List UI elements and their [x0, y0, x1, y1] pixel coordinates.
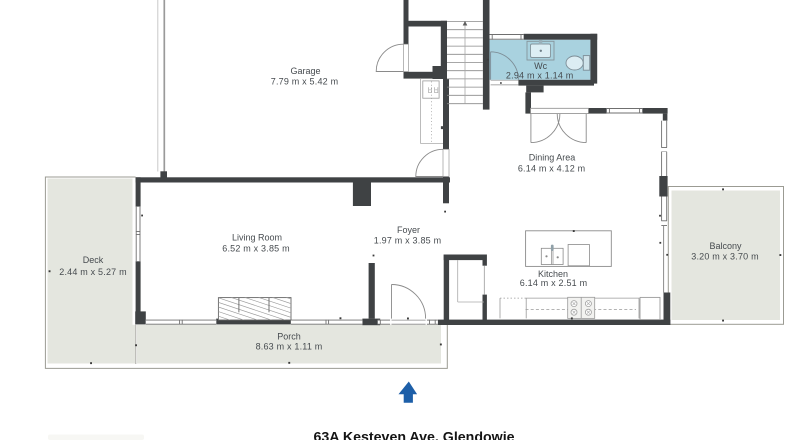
svg-text:Garage: Garage	[290, 66, 320, 76]
svg-text:7.79 m x 5.42 m: 7.79 m x 5.42 m	[271, 77, 339, 87]
svg-text:Balcony: Balcony	[709, 241, 742, 251]
svg-text:8.63 m x 1.11 m: 8.63 m x 1.11 m	[256, 342, 323, 352]
svg-text:Wc: Wc	[534, 61, 547, 71]
svg-text:2.44 m x 5.27 m: 2.44 m x 5.27 m	[59, 267, 127, 277]
svg-text:Living Room: Living Room	[232, 233, 282, 243]
svg-text:Dining Area: Dining Area	[529, 153, 576, 163]
svg-text:6.14 m x 2.51 m: 6.14 m x 2.51 m	[520, 278, 588, 288]
svg-text:Deck: Deck	[83, 255, 104, 265]
svg-text:Foyer: Foyer	[397, 225, 420, 235]
svg-text:3.20 m x 3.70 m: 3.20 m x 3.70 m	[691, 252, 759, 262]
svg-text:1.97 m x 3.85 m: 1.97 m x 3.85 m	[374, 236, 442, 246]
svg-text:6.52 m x 3.85 m: 6.52 m x 3.85 m	[222, 244, 290, 254]
svg-text:Porch: Porch	[277, 332, 301, 342]
svg-text:2.94 m x 1.14 m: 2.94 m x 1.14 m	[506, 71, 574, 81]
svg-text:6.14 m x 4.12 m: 6.14 m x 4.12 m	[518, 163, 586, 173]
svg-text:63A Kesteven Ave, Glendowie: 63A Kesteven Ave, Glendowie	[313, 430, 514, 440]
